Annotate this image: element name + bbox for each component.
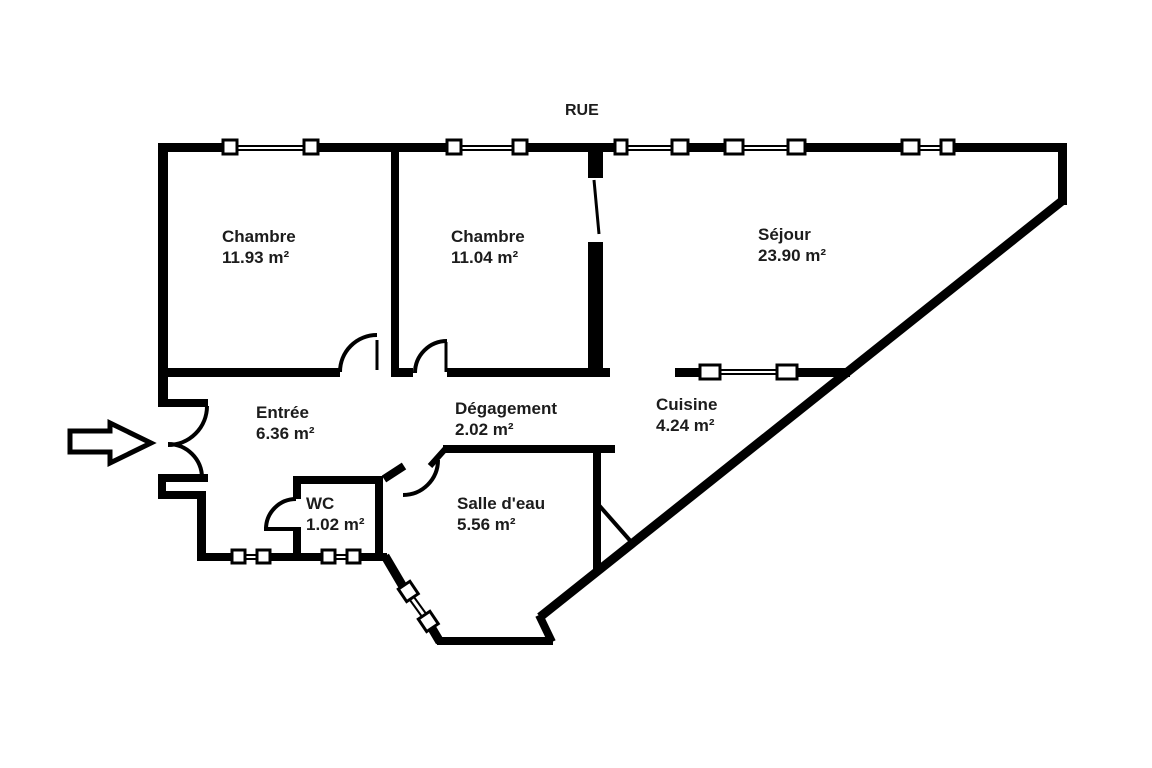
room-label-sejour: Séjour 23.90 m² xyxy=(758,224,826,266)
door-icon xyxy=(594,180,599,234)
room-label-salle-deau: Salle d'eau 5.56 m² xyxy=(457,493,545,535)
door-icon xyxy=(264,499,296,529)
window-icon xyxy=(700,365,797,379)
room-area: 11.04 m² xyxy=(451,247,525,268)
entrance-arrow-icon xyxy=(70,423,151,463)
window-icon xyxy=(398,581,438,631)
room-area: 11.93 m² xyxy=(222,247,296,268)
window-icon xyxy=(615,140,688,154)
door-icon xyxy=(597,503,634,545)
room-area: 23.90 m² xyxy=(758,245,826,266)
room-label-wc: WC 1.02 m² xyxy=(306,493,365,535)
room-name: Chambre xyxy=(451,226,525,247)
floor-plan: RUE Chambre 11.93 m² Chambre 11.04 m² Sé… xyxy=(0,0,1152,768)
street-label: RUE xyxy=(565,102,599,120)
room-name: Entrée xyxy=(256,402,315,423)
room-name: Chambre xyxy=(222,226,296,247)
room-label-chambre-1: Chambre 11.93 m² xyxy=(222,226,296,268)
door-icon xyxy=(403,447,447,495)
door-icon xyxy=(415,341,447,373)
room-name: WC xyxy=(306,493,365,514)
window-icon xyxy=(223,140,318,154)
room-name: Cuisine xyxy=(656,394,717,415)
window-icon xyxy=(902,140,955,154)
room-area: 2.02 m² xyxy=(455,419,557,440)
window-icon xyxy=(232,550,270,563)
room-name: Salle d'eau xyxy=(457,493,545,514)
window-icon xyxy=(447,140,527,154)
window-icon xyxy=(322,550,360,563)
room-area: 5.56 m² xyxy=(457,514,545,535)
room-label-entree: Entrée 6.36 m² xyxy=(256,402,315,444)
room-name: Séjour xyxy=(758,224,826,245)
room-label-degagement: Dégagement 2.02 m² xyxy=(455,398,557,440)
window-icon xyxy=(725,140,805,154)
room-label-chambre-2: Chambre 11.04 m² xyxy=(451,226,525,268)
entrance-door-icon xyxy=(168,406,207,478)
windows xyxy=(223,140,955,632)
room-name: Dégagement xyxy=(455,398,557,419)
room-area: 1.02 m² xyxy=(306,514,365,535)
room-label-cuisine: Cuisine 4.24 m² xyxy=(656,394,717,436)
door-icon xyxy=(340,335,377,372)
room-area: 6.36 m² xyxy=(256,423,315,444)
exterior-walls xyxy=(158,143,1067,645)
room-area: 4.24 m² xyxy=(656,415,717,436)
